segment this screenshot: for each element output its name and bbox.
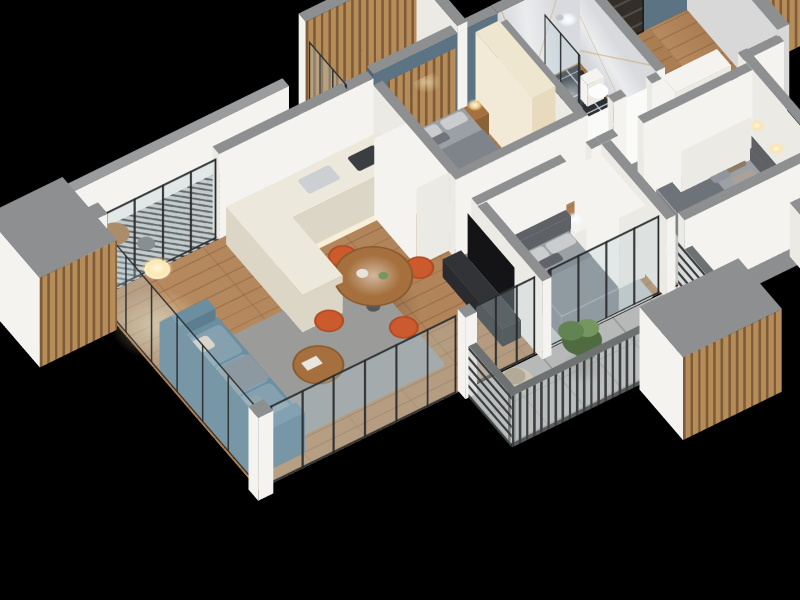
pier-west-south-side [248, 407, 258, 501]
wall-living-divider-b-front [542, 277, 551, 360]
pier-west-south-front [258, 411, 273, 501]
floorplan-projection [0, 0, 800, 600]
kitchen-tall-cabinet-front [417, 173, 449, 267]
pier-balcony-left-side [458, 309, 466, 399]
wall-bed12-divider-front [666, 215, 675, 299]
floorplan-viewport [0, 0, 800, 600]
